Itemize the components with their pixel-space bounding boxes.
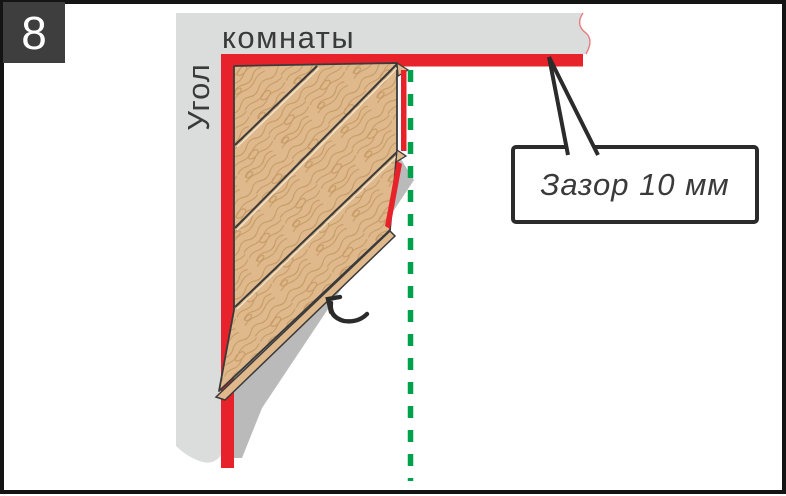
expansion-gap-vertical (221, 54, 234, 468)
laminate-panel-grain (219, 63, 397, 391)
step-number: 8 (21, 6, 47, 60)
step-badge: 8 (3, 2, 65, 63)
corner-diagram (0, 0, 786, 496)
panel-gap-strip-vertical (401, 70, 407, 151)
wall-label-komnaty: комнаты (222, 21, 355, 55)
wall-label-ugol: Угол (179, 56, 219, 138)
instruction-figure: 8 комнаты Угол Зазор 10 мм (0, 0, 786, 496)
rotate-arrow-icon (328, 297, 367, 321)
callout-text: Зазор 10 мм (513, 149, 757, 220)
